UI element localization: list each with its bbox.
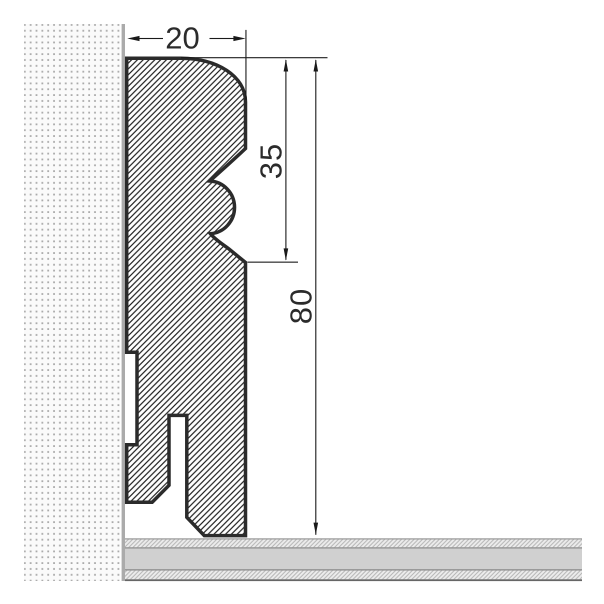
svg-text:80: 80 bbox=[283, 288, 318, 324]
svg-text:35: 35 bbox=[254, 143, 289, 179]
svg-text:20: 20 bbox=[165, 20, 199, 55]
